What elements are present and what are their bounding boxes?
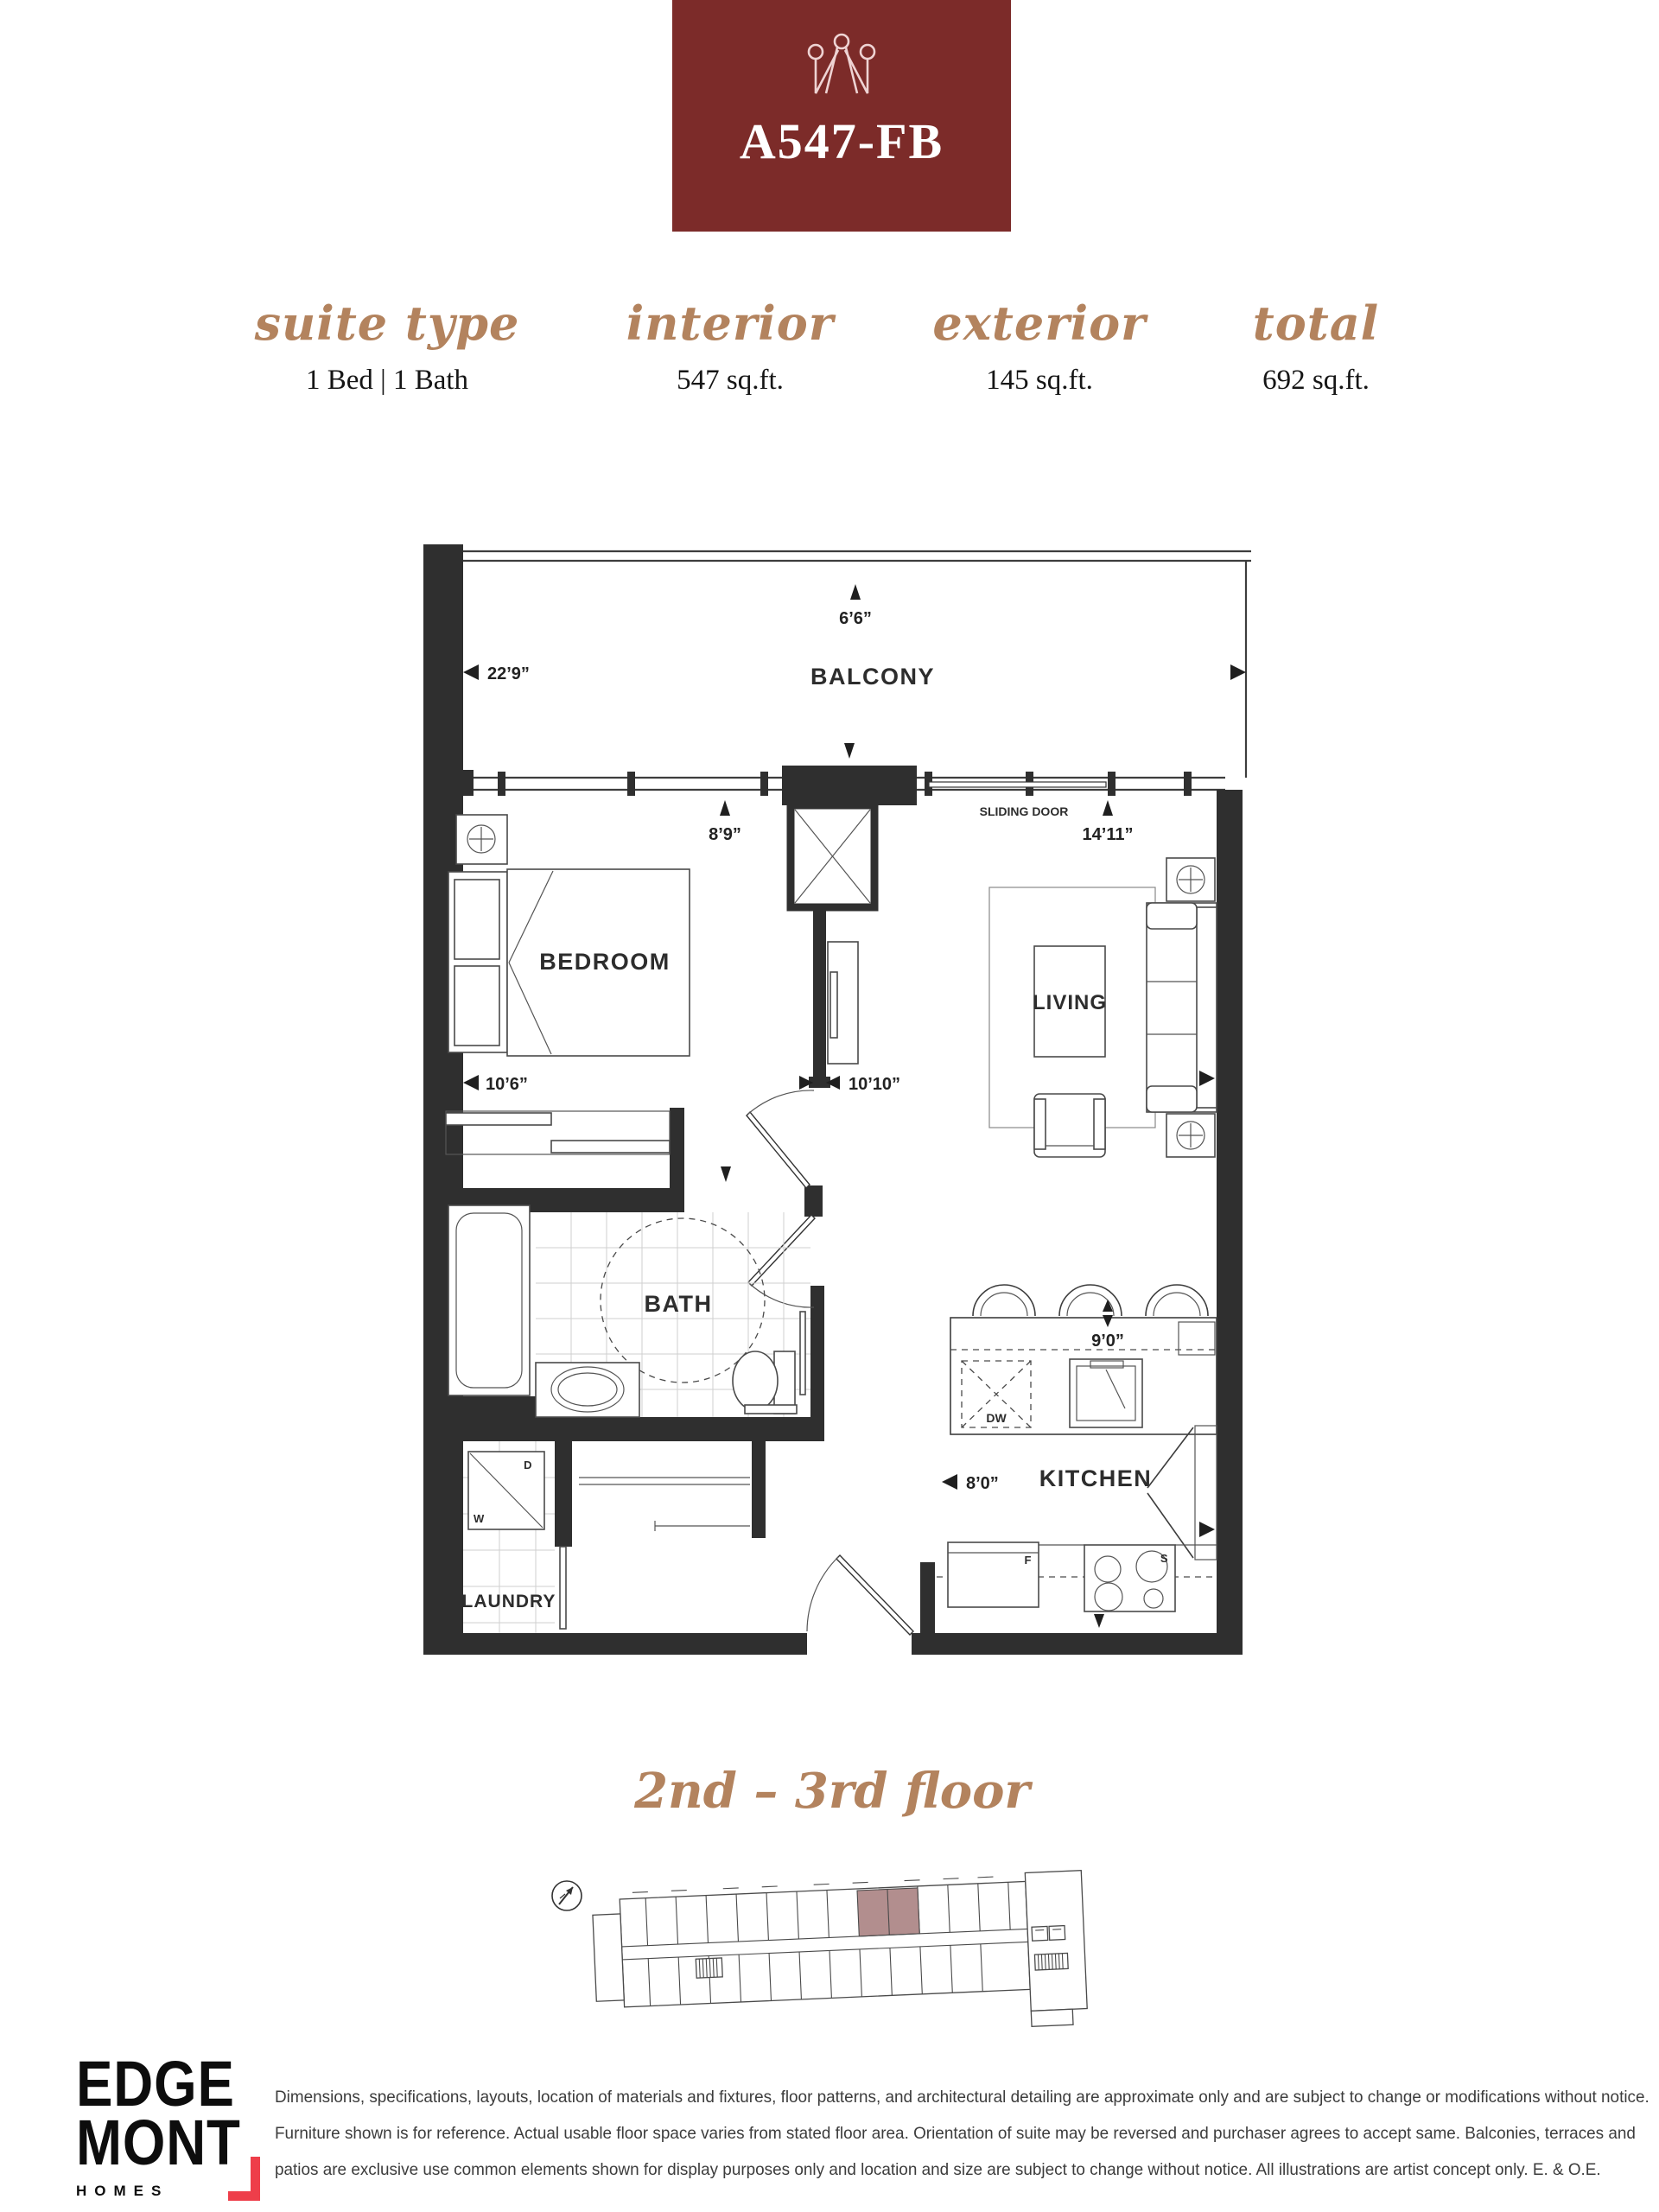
bedroom-door	[747, 1090, 814, 1188]
kitchen-island-dim: 9’0”	[1091, 1332, 1124, 1351]
side-table	[1166, 858, 1215, 901]
balcony-label: BALCONY	[810, 664, 935, 690]
balcony-depth-dim: 6’6”	[839, 609, 872, 628]
stat-exterior: exterior 145 sq.ft.	[932, 296, 1146, 397]
dim-arrow-down-icon	[721, 1166, 731, 1182]
pillow	[454, 880, 499, 959]
crown-icon	[800, 33, 883, 100]
sliding-door-panel	[929, 782, 1106, 787]
stat-value: 145 sq.ft.	[932, 365, 1146, 397]
stat-total: total 692 sq.ft.	[1253, 296, 1379, 397]
stat-label: total	[1253, 296, 1379, 351]
bedroom-width-dim: 10’6”	[486, 1075, 528, 1094]
dim-arrow-up-icon	[1103, 800, 1113, 816]
unit-code: A547-FB	[740, 112, 944, 170]
floorplan-drawing: BALCONY 6’6” 22’9” 8’9” SLIDING DOOR 14’…	[423, 536, 1262, 1698]
disclaimer-line: Furniture shown is for reference. Actual…	[275, 2115, 1566, 2152]
dim-arrow-down-icon	[1094, 1614, 1104, 1628]
entry-closet	[579, 1478, 750, 1531]
disclaimer-line: Dimensions, specifications, layouts, loc…	[275, 2079, 1566, 2115]
entry-door	[807, 1555, 913, 1635]
balcony-area: BALCONY 6’6” 22’9”	[463, 584, 1246, 759]
dim-arrow-down-icon	[844, 743, 855, 759]
pillow	[454, 966, 499, 1046]
toilet-icon	[733, 1351, 797, 1414]
edgemont-logo: EDGE MONT HOMES	[76, 2055, 283, 2200]
living-width-dim: 10’10”	[849, 1075, 900, 1094]
dim-arrow-right-icon	[1230, 664, 1246, 680]
closet-sliding-doors	[446, 1111, 670, 1154]
tv	[830, 972, 837, 1038]
stove-label: S	[1160, 1552, 1168, 1565]
floor-range-label: 2nd – 3rd floor	[634, 1763, 1030, 1820]
dim-arrow-down-icon	[1103, 1315, 1113, 1327]
laundry-label: LAUNDRY	[462, 1592, 556, 1611]
stat-label: interior	[626, 296, 835, 351]
washer-label: W	[474, 1512, 485, 1525]
dryer-label: D	[524, 1459, 532, 1471]
stat-label: exterior	[932, 296, 1146, 351]
armchair	[1034, 1094, 1105, 1157]
dim-arrow-left-icon	[463, 664, 479, 680]
sliding-door-label: SLIDING DOOR	[980, 804, 1069, 818]
stat-value: 1 Bed | 1 Bath	[255, 365, 520, 397]
structural-column	[791, 805, 874, 907]
side-table	[1166, 1114, 1215, 1157]
kitchen-width-dim: 8’0”	[966, 1474, 999, 1493]
logo-corner-icon	[228, 2157, 260, 2201]
building-keyplan	[544, 1851, 1115, 2058]
fridge: F	[948, 1542, 1039, 1607]
dim-arrow-up-icon	[850, 584, 861, 600]
dim-arrow-left-icon	[463, 1075, 479, 1090]
stat-interior: interior 547 sq.ft.	[626, 296, 835, 397]
logo-line1: EDGE	[76, 2055, 254, 2113]
floorplan-page: A547-FB suite type 1 Bed | 1 Bath interi…	[0, 0, 1659, 2212]
bedroom-window-dim: 8’9”	[709, 825, 741, 844]
bath-area: BATH	[448, 1205, 810, 1417]
dishwasher: DW	[962, 1361, 1031, 1427]
kitchen-label: KITCHEN	[1039, 1465, 1153, 1491]
stove: S	[1084, 1545, 1175, 1628]
pocket-door	[560, 1547, 566, 1629]
living-window-dim: 14’11”	[1083, 825, 1134, 844]
fridge-label: F	[1025, 1554, 1032, 1567]
stat-suite-type: suite type 1 Bed | 1 Bath	[255, 296, 520, 397]
stat-value: 547 sq.ft.	[626, 365, 835, 397]
stairs-icon	[696, 1958, 722, 1978]
disclaimer-text: Dimensions, specifications, layouts, loc…	[275, 2079, 1566, 2188]
bath-label: BATH	[645, 1291, 713, 1317]
bath-door	[748, 1215, 815, 1307]
stat-label: suite type	[255, 296, 520, 351]
kitchen-sink	[1070, 1359, 1142, 1427]
bedroom-label: BEDROOM	[539, 949, 671, 975]
stat-value: 692 sq.ft.	[1253, 365, 1379, 397]
dishwasher-label: DW	[986, 1411, 1007, 1425]
balcony-width-dim: 22’9”	[487, 664, 530, 683]
living-label: LIVING	[1033, 991, 1107, 1014]
living-area: LIVING	[989, 858, 1217, 1157]
kitchen-area: 9’0” DW KITCHEN 8’0”	[937, 1285, 1217, 1628]
north-arrow-icon	[552, 1881, 582, 1910]
grab-bar	[800, 1312, 805, 1395]
dim-arrow-right-icon	[1199, 1522, 1215, 1537]
pantry-bifold	[1147, 1426, 1217, 1560]
bathtub	[448, 1205, 530, 1395]
bar-stools	[973, 1285, 1208, 1316]
laundry-area: D W LAUNDRY	[462, 1441, 750, 1633]
dim-arrow-up-icon	[720, 800, 730, 816]
unit-header-box: A547-FB	[672, 0, 1011, 232]
disclaimer-line: patios are exclusive use common elements…	[275, 2152, 1566, 2188]
keyplan-building	[592, 1871, 1088, 2046]
column-block	[782, 766, 917, 805]
dim-arrow-left-icon	[942, 1474, 957, 1490]
